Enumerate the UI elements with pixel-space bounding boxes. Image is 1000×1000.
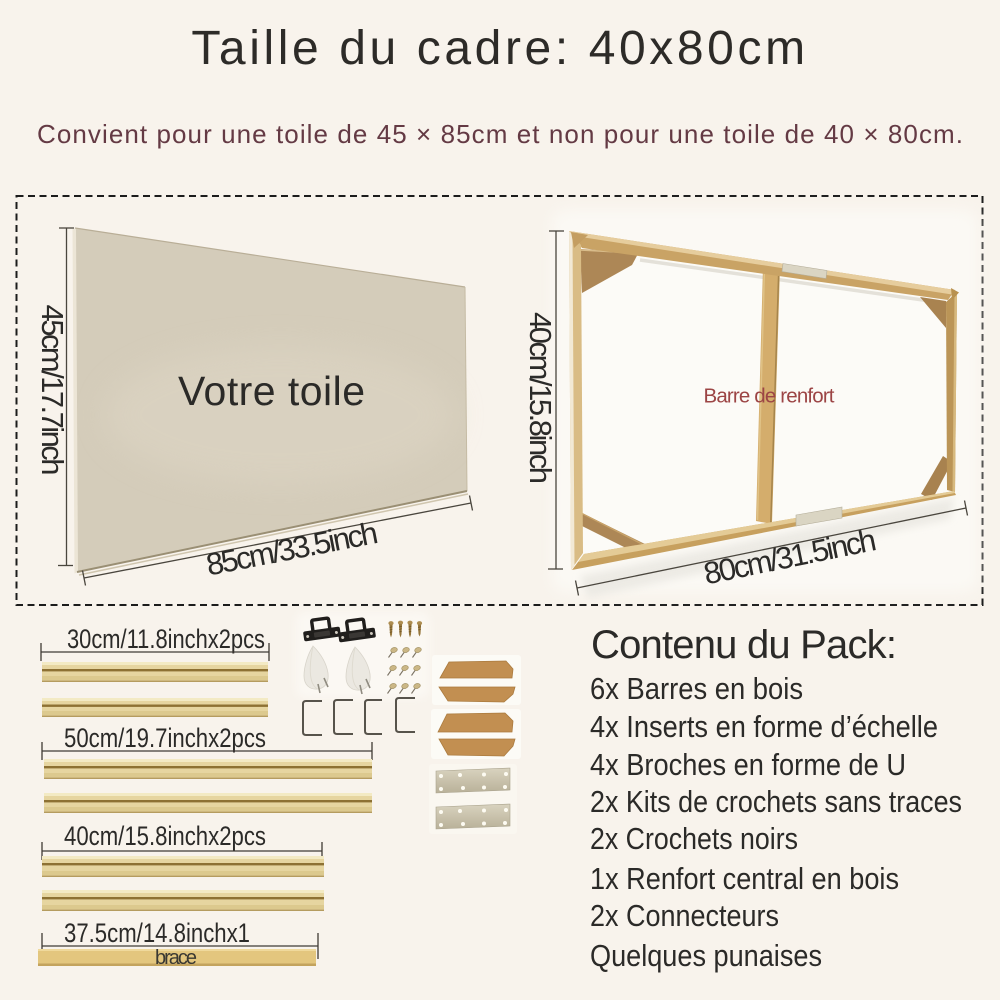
svg-text:Votre toile: Votre toile [178, 368, 365, 414]
svg-text:1x Renfort central en bois: 1x Renfort central en bois [590, 861, 899, 896]
svg-text:brace: brace [155, 947, 197, 969]
svg-text:50cm/19.7inchx2pcs: 50cm/19.7inchx2pcs [64, 723, 266, 753]
svg-text:Quelques punaises: Quelques punaises [590, 938, 822, 973]
svg-text:2x Crochets noirs: 2x Crochets noirs [590, 821, 798, 856]
svg-text:45cm/17.7inch: 45cm/17.7inch [35, 305, 70, 476]
svg-text:Convient pour une toile de 45: Convient pour une toile de 45 × 85cm et … [37, 119, 963, 149]
svg-text:4x Inserts en forme d’échelle: 4x Inserts en forme d’échelle [590, 709, 938, 744]
svg-text:2x Connecteurs: 2x Connecteurs [590, 898, 779, 933]
svg-text:Barre de renfort: Barre de renfort [704, 385, 835, 408]
svg-text:6x Barres en bois: 6x Barres en bois [590, 671, 803, 706]
svg-text:Taille du cadre: 40x80cm: Taille du cadre: 40x80cm [191, 22, 808, 75]
svg-text:30cm/11.8inchx2pcs: 30cm/11.8inchx2pcs [67, 624, 265, 654]
svg-text:4x Broches en forme de U: 4x Broches en forme de U [590, 747, 906, 782]
svg-text:40cm/15.8inch: 40cm/15.8inch [523, 312, 558, 484]
svg-text:37.5cm/14.8inchx1: 37.5cm/14.8inchx1 [64, 918, 250, 948]
svg-text:2x Kits de crochets sans trace: 2x Kits de crochets sans traces [590, 784, 962, 819]
svg-text:Contenu du Pack:: Contenu du Pack: [591, 623, 897, 667]
svg-text:40cm/15.8inchx2pcs: 40cm/15.8inchx2pcs [64, 821, 266, 851]
